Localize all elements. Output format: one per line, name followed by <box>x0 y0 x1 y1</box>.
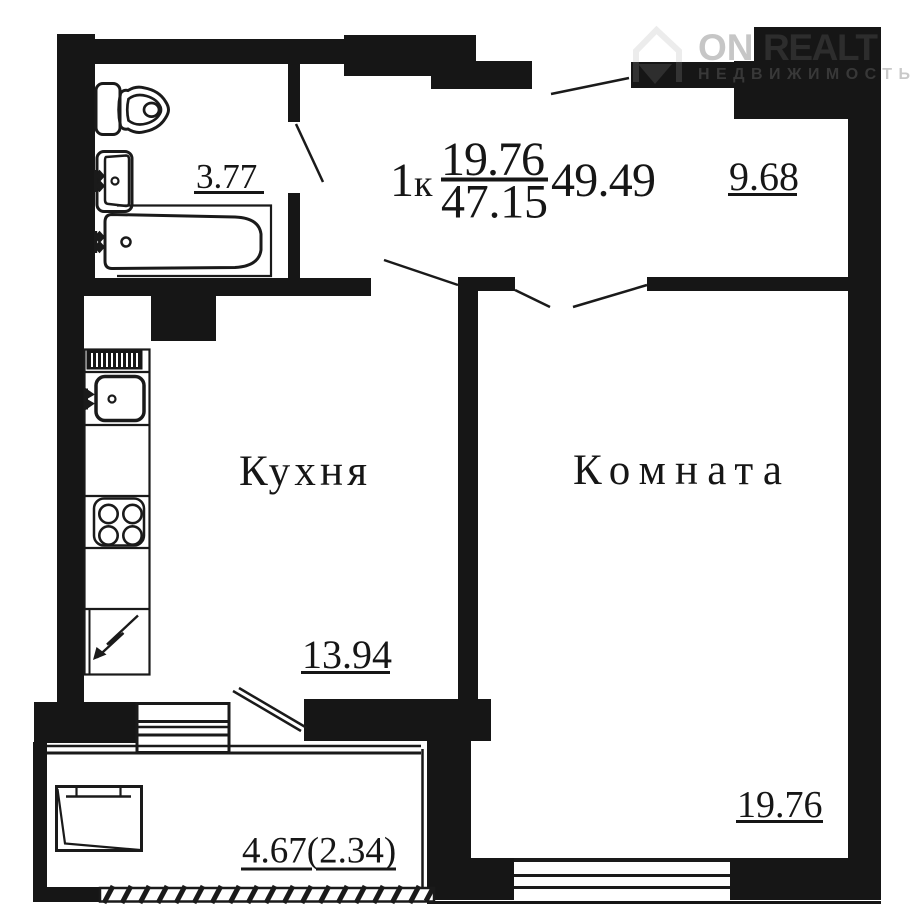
svg-text:3.77: 3.77 <box>196 157 257 196</box>
svg-text:49.49: 49.49 <box>551 154 656 207</box>
svg-text:ON: ON <box>698 27 754 68</box>
svg-text:13.94: 13.94 <box>302 632 392 677</box>
svg-text:19.76: 19.76 <box>737 784 823 826</box>
svg-text:4.67(2.34): 4.67(2.34) <box>242 831 396 872</box>
svg-text:47.15: 47.15 <box>441 176 548 229</box>
svg-text:Кухня: Кухня <box>239 448 367 495</box>
svg-text:9.68: 9.68 <box>729 154 799 199</box>
svg-text:REALT: REALT <box>763 27 878 68</box>
